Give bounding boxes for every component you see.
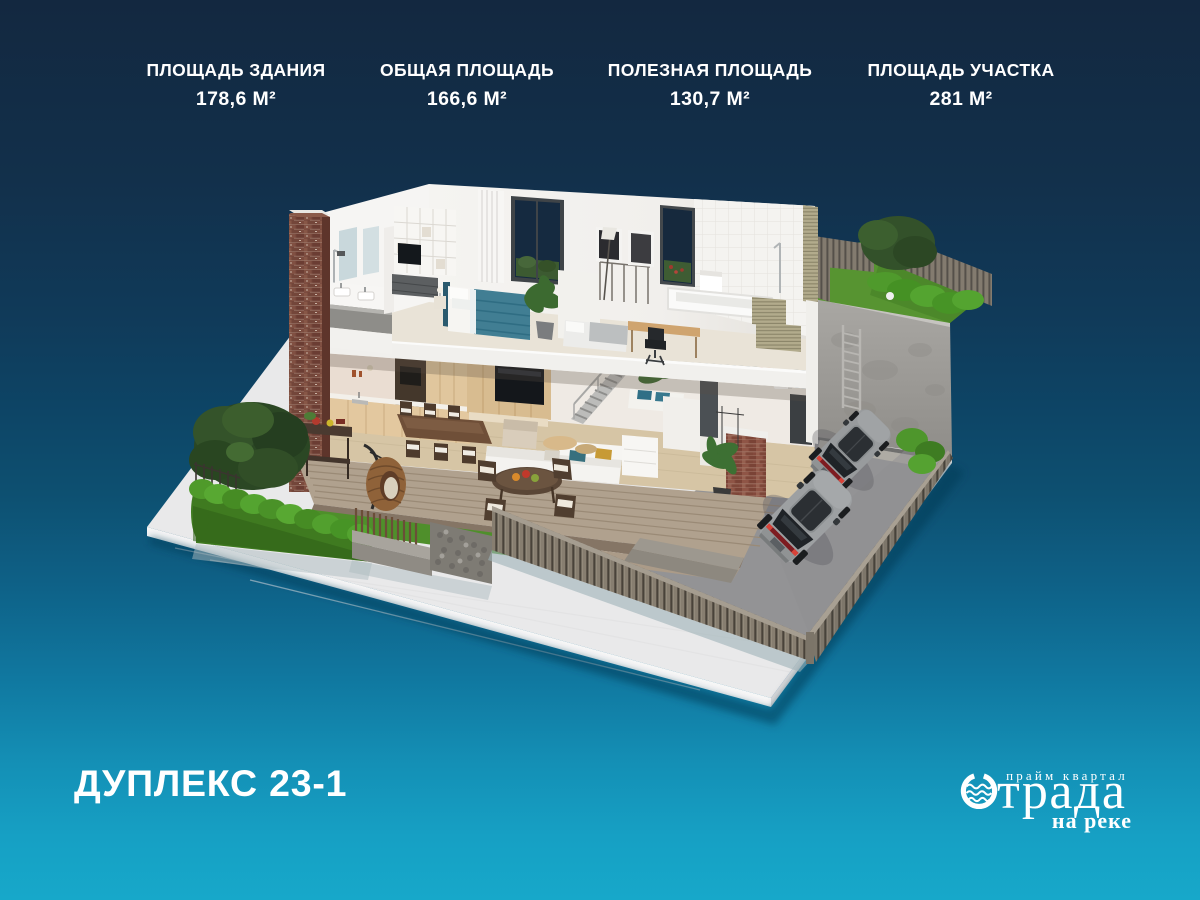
svg-text:ОБЩАЯ ПЛОЩАДЬ: ОБЩАЯ ПЛОЩАДЬ [380,60,554,80]
svg-text:ПЛОЩАДЬ ЗДАНИЯ: ПЛОЩАДЬ ЗДАНИЯ [147,60,326,80]
svg-text:281 М²: 281 М² [929,88,992,110]
svg-text:130,7 М²: 130,7 М² [670,88,750,110]
svg-text:ДУПЛЕКС 23-1: ДУПЛЕКС 23-1 [74,762,347,804]
svg-text:на реке: на реке [1052,808,1132,833]
svg-text:166,6 М²: 166,6 М² [427,88,507,110]
svg-text:ПОЛЕЗНАЯ ПЛОЩАДЬ: ПОЛЕЗНАЯ ПЛОЩАДЬ [608,60,812,80]
svg-text:178,6 М²: 178,6 М² [196,88,276,110]
svg-text:ПЛОЩАДЬ УЧАСТКА: ПЛОЩАДЬ УЧАСТКА [867,60,1054,80]
